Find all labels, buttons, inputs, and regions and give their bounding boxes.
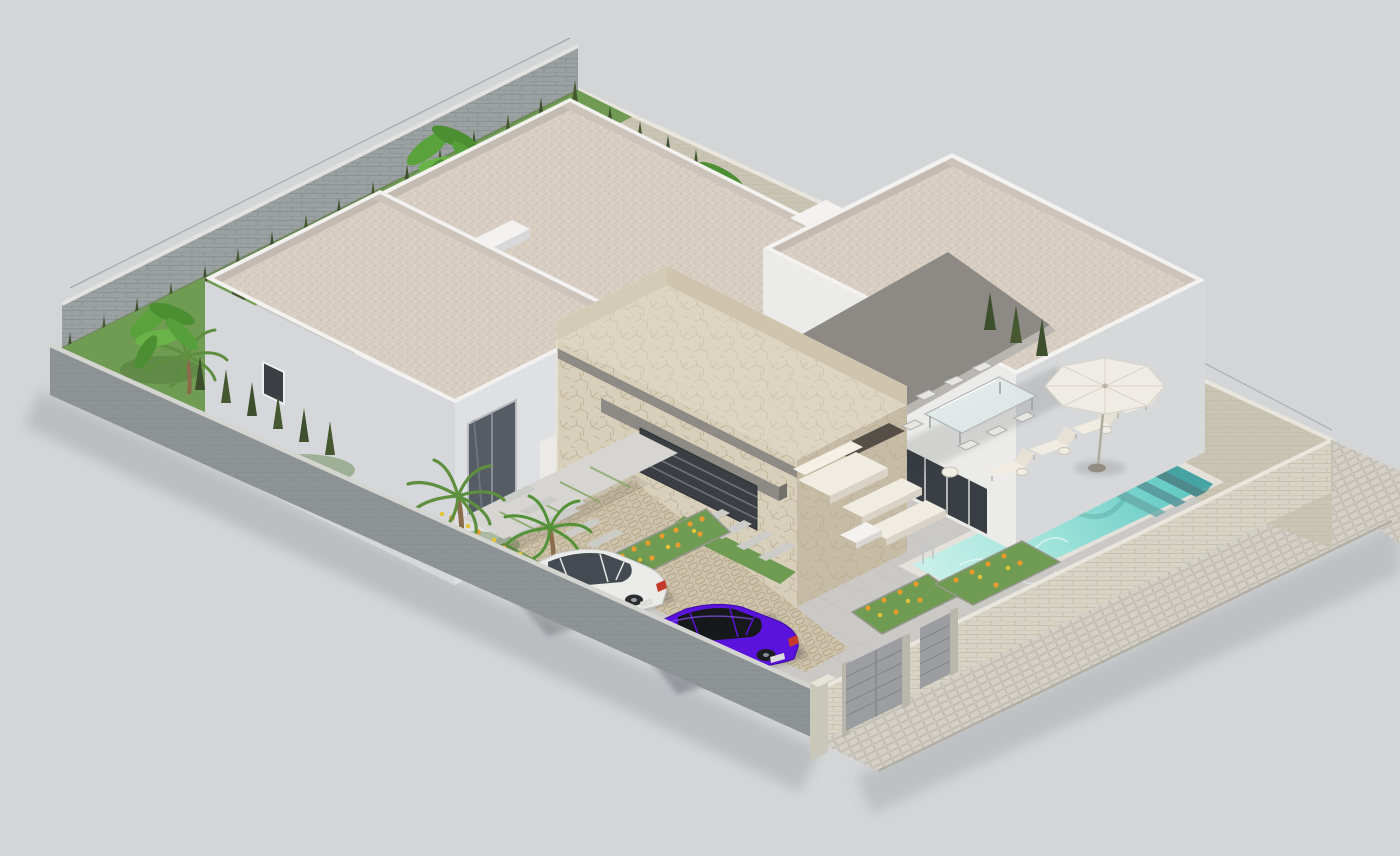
flower-dot	[906, 599, 910, 603]
flower-dot	[865, 605, 870, 610]
flower-dot	[917, 597, 922, 602]
flower-dot	[993, 582, 998, 587]
flower-dot	[697, 531, 702, 536]
wheel-hub	[631, 598, 637, 602]
flower-dot	[673, 527, 678, 532]
flower-dot	[692, 529, 696, 533]
flower-dot	[659, 533, 664, 538]
flower-dot	[666, 545, 670, 549]
parasol-finial	[1103, 384, 1108, 389]
gate-post	[950, 607, 958, 676]
flower-dot	[897, 589, 902, 594]
flower-dot	[466, 524, 471, 529]
flower-dot	[1006, 566, 1010, 570]
flower-dot	[1017, 560, 1022, 565]
flower-dot	[645, 540, 650, 545]
flower-dot	[913, 581, 918, 586]
flower-dot	[649, 555, 654, 560]
flower-dot	[953, 577, 958, 582]
flower-dot	[893, 609, 898, 614]
towel-table	[942, 467, 958, 477]
flower-dot	[969, 569, 974, 574]
flower-dot	[687, 521, 692, 526]
flower-dot	[881, 597, 886, 602]
flower-dot	[978, 575, 982, 579]
side-table	[1016, 469, 1028, 476]
gate-post	[902, 633, 910, 709]
corner-pillar	[810, 674, 828, 761]
villa-render	[0, 0, 1400, 856]
flower-dot	[440, 512, 445, 517]
flower-dot	[675, 542, 680, 547]
side-table	[1058, 448, 1070, 455]
flower-dot	[631, 546, 636, 551]
wheel-hub	[763, 653, 769, 657]
flower-dot	[699, 516, 704, 521]
render-viewport	[0, 0, 1400, 856]
flower-dot	[1001, 553, 1006, 558]
flower-dot	[878, 613, 882, 617]
flower-dot	[985, 561, 990, 566]
parasol-base	[1088, 464, 1106, 473]
